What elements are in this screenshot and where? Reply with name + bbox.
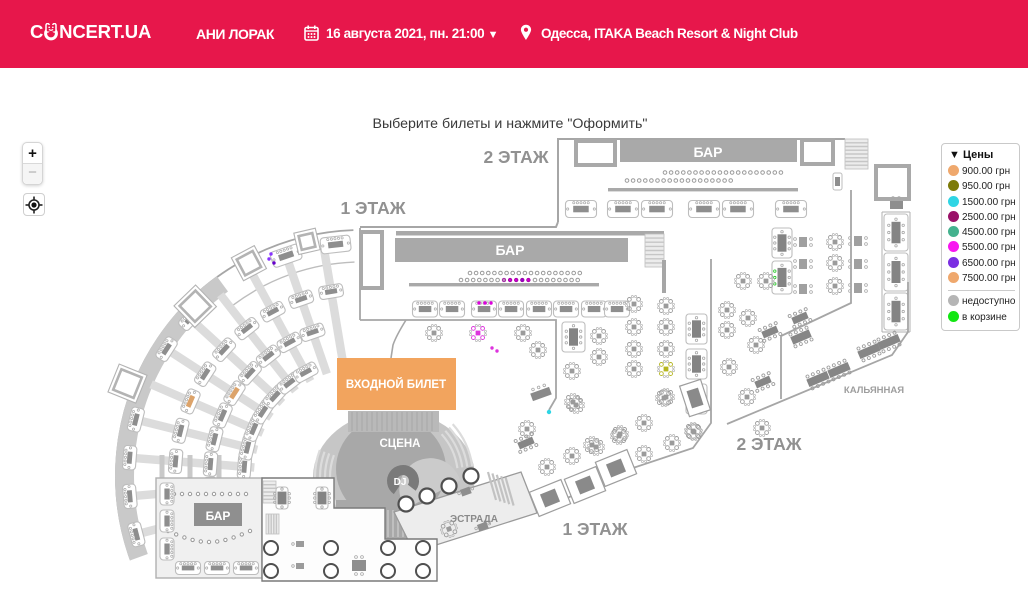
svg-text:СЦЕНА: СЦЕНА (380, 438, 421, 450)
svg-text:БАР: БАР (206, 509, 231, 523)
svg-text:2 ЭТАЖ: 2 ЭТАЖ (736, 434, 801, 454)
svg-text:DJ: DJ (394, 477, 407, 488)
svg-text:БАР: БАР (694, 144, 723, 160)
svg-text:ВХОДНОЙ БИЛЕТ: ВХОДНОЙ БИЛЕТ (346, 378, 446, 391)
svg-text:БАР: БАР (496, 242, 525, 258)
svg-text:1 ЭТАЖ: 1 ЭТАЖ (562, 519, 627, 539)
svg-text:2 ЭТАЖ: 2 ЭТАЖ (483, 147, 548, 167)
svg-text:КАЛЬЯННАЯ: КАЛЬЯННАЯ (844, 385, 904, 396)
svg-text:1 ЭТАЖ: 1 ЭТАЖ (340, 198, 405, 218)
